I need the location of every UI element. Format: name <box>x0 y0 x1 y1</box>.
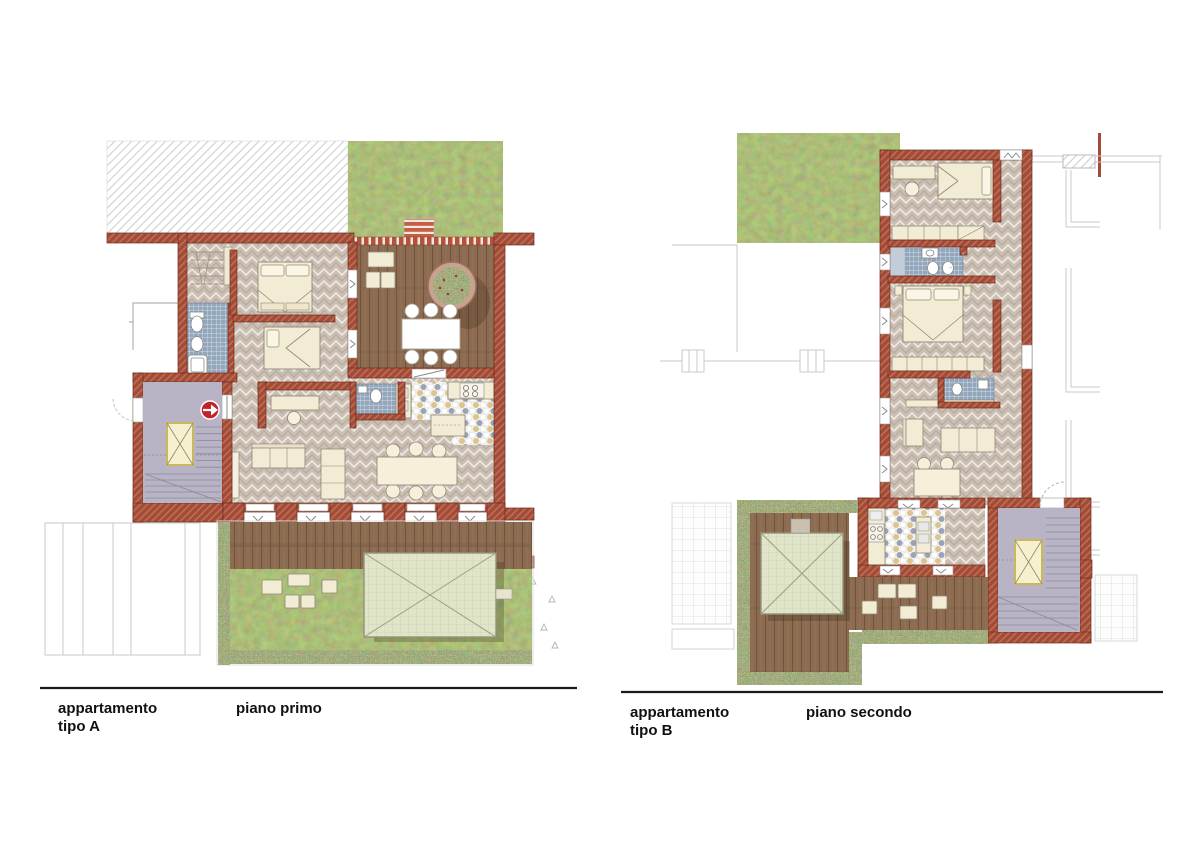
flower-border-left <box>218 522 230 665</box>
dining-table <box>377 457 457 485</box>
plan-a-apartment-label: appartamento tipo A <box>58 700 157 736</box>
plan-b-stairwell <box>998 508 1080 632</box>
entry-door-swing <box>113 399 135 421</box>
drawing-sheet: appartamento tipo A piano primo appartam… <box>0 0 1200 848</box>
plan-b-apartment-line2: tipo B <box>630 722 729 740</box>
bathroom-b1 <box>888 247 963 276</box>
plan-a-garden <box>217 521 533 665</box>
neighbor-outlines-right <box>1032 155 1162 555</box>
plan-a-floor-label: piano primo <box>236 700 322 718</box>
armchair <box>906 419 923 446</box>
plan-a-terrace <box>354 237 494 375</box>
console <box>232 452 239 498</box>
plan-b <box>660 133 1162 685</box>
bathroom-b2 <box>944 378 994 403</box>
single-bed <box>264 327 320 369</box>
plan-a-stairwell <box>143 382 222 503</box>
paved-court <box>672 503 731 624</box>
desk-chair <box>905 182 919 196</box>
double-bed <box>258 262 312 312</box>
party-wall-line <box>1098 133 1101 177</box>
sofa <box>252 448 305 468</box>
wardrobe-1 <box>892 226 958 240</box>
garden-steps <box>404 219 434 239</box>
gazebo-step <box>496 589 512 599</box>
neighbor-paving <box>1095 575 1137 641</box>
dining-table-b <box>914 469 960 496</box>
terrace-dining-set <box>402 303 460 365</box>
canopy-outline <box>129 303 178 350</box>
adjacent-building-hatch <box>107 141 348 233</box>
terrace-brick-edge <box>354 237 494 245</box>
plan-a <box>45 141 558 665</box>
sofa-b <box>941 428 995 452</box>
flower-border-bottom <box>230 650 532 664</box>
plan-a-apartment-line1: appartamento <box>58 700 157 718</box>
desk <box>893 166 935 179</box>
stove-b <box>868 524 884 542</box>
gazebo-b-entry <box>791 519 810 533</box>
plan-b-floor-label: piano secondo <box>806 704 912 722</box>
wardrobe-2 <box>892 357 984 371</box>
neighbor-outlines-left <box>660 245 880 372</box>
lawn-north-b <box>737 133 900 243</box>
kitchen-island <box>431 415 465 436</box>
chaise <box>321 449 345 499</box>
kitchen-b <box>867 505 945 565</box>
terrace-table <box>402 319 460 349</box>
plan-b-apartment-line1: appartamento <box>630 704 729 722</box>
entrance-arrow-icon <box>201 401 219 419</box>
floor-plans-canvas <box>0 0 1200 848</box>
plan-a-apartment-line2: tipo A <box>58 718 157 736</box>
lower-balcony-outlines <box>45 523 200 655</box>
kitchen-b-floor <box>885 505 945 565</box>
planter-foliage <box>433 267 471 305</box>
neighbor-balcony <box>672 629 734 649</box>
plan-b-apartment-label: appartamento tipo B <box>630 704 729 740</box>
